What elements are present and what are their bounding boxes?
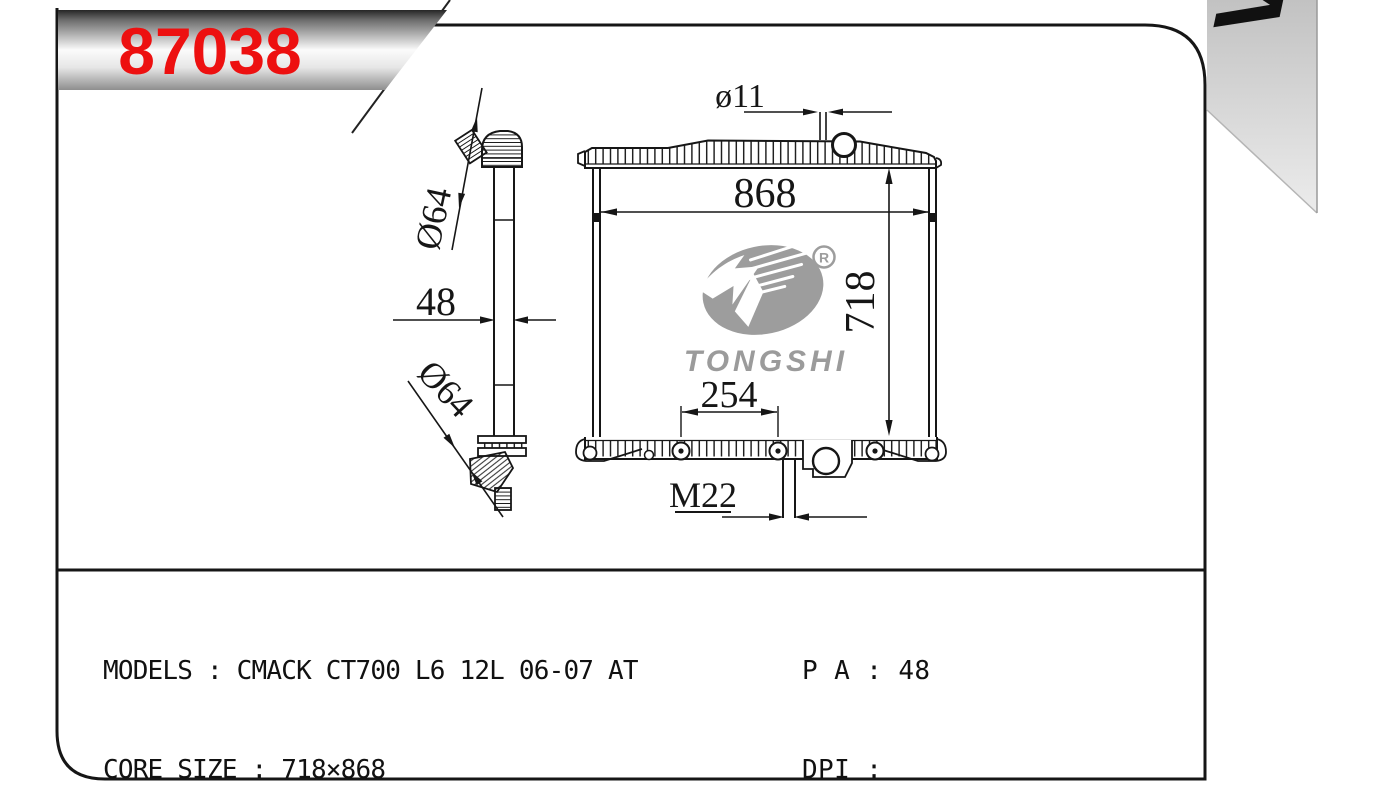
spec-pa: P A : 48 (802, 652, 1155, 691)
dim-bolt-spacing: 254 (701, 374, 758, 416)
dim-core-height: 718 (838, 271, 884, 334)
tongshi-logo: R TONGSHI (684, 234, 848, 378)
spec-models: MODELS : CMACK CT700 L6 12L 06-07 AT (103, 652, 638, 691)
spec-list-right: P A : 48 DPI : OEM : 01010801/1003499 NI… (802, 592, 1155, 801)
dim-tank-depth: 48 (416, 279, 456, 324)
drain-pipe (783, 459, 795, 518)
dim-drain-thread: M22 (669, 475, 737, 515)
inlet-elbow (482, 131, 522, 167)
outlet-elbow (470, 452, 513, 492)
corner-fold: > (1201, 0, 1317, 213)
spec-list-left: MODELS : CMACK CT700 L6 12L 06-07 AT COR… (103, 592, 638, 801)
dim-filler-neck: ø11 (715, 78, 765, 115)
filler-stem (820, 112, 826, 140)
dim-outlet-diameter: Ø64 (410, 353, 482, 426)
dim-inlet-diameter: Ø64 (407, 184, 459, 253)
catalog-page: > 87038 R TONGSHI (0, 0, 1399, 801)
filler-cap (833, 134, 856, 157)
part-number-banner: 87038 (58, 0, 450, 133)
spec-core-size: CORE SIZE : 718×868 (103, 751, 638, 790)
part-number: 87038 (118, 14, 302, 88)
registered-trademark-letter: R (819, 250, 829, 266)
outlet-port (813, 448, 839, 474)
dim-core-width: 868 (734, 171, 797, 217)
spec-dpi: DPI : (802, 751, 1155, 790)
